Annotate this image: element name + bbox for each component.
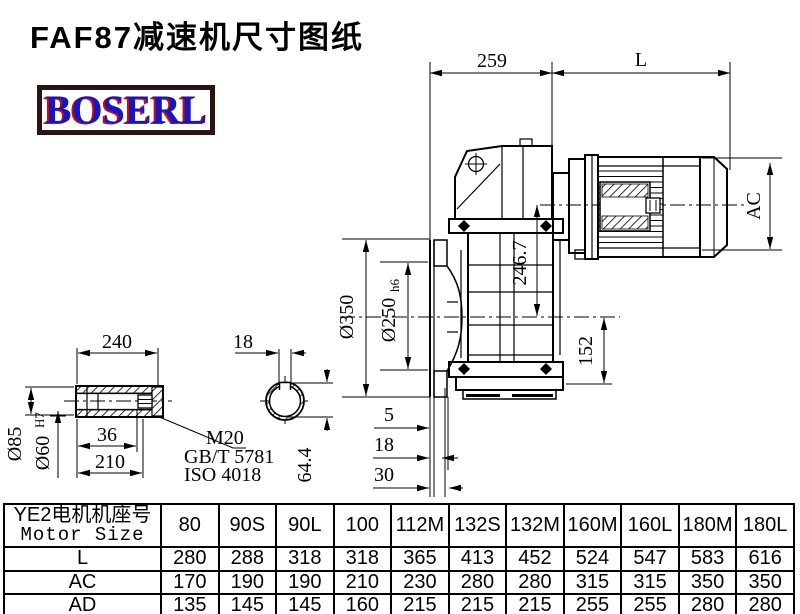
cell: 547 [621, 547, 679, 571]
drawing-sheet: FAF87减速机尺寸图纸 BOSERL [0, 0, 800, 614]
dim-18-flange-label: 18 [374, 434, 394, 456]
dim-152-label: 152 [575, 336, 597, 366]
col-header: 90S [219, 504, 277, 547]
dim-L-label: L [635, 49, 647, 71]
table-header-motor-size: YE2电机机座号 Motor Size [4, 504, 161, 547]
bolt-icon [540, 363, 552, 375]
shaft-section-detail [266, 382, 304, 421]
cell: 190 [219, 571, 277, 594]
cell: 365 [391, 547, 449, 571]
dim-240-label: 240 [102, 331, 132, 353]
table-row-AD: AD 135 145 145 160 215 215 215 255 255 2… [4, 594, 794, 614]
dim-5-label: 5 [384, 404, 394, 426]
cell: 315 [564, 571, 622, 594]
cell: 255 [621, 594, 679, 614]
cell: 255 [564, 594, 622, 614]
cell: 583 [679, 547, 737, 571]
centerlines [64, 205, 748, 426]
cell: 452 [506, 547, 564, 571]
bolt-icon [458, 220, 470, 232]
col-header: 112M [391, 504, 449, 547]
cell: 318 [334, 547, 392, 571]
cell: 288 [219, 547, 277, 571]
col-header: 100 [334, 504, 392, 547]
cell: 280 [736, 594, 794, 614]
cell: 280 [161, 547, 219, 571]
table-row-L: L 280 288 318 318 365 413 452 524 547 58… [4, 547, 794, 571]
cell: 350 [736, 571, 794, 594]
cell: 318 [276, 547, 334, 571]
dim-36-label: 36 [97, 424, 117, 446]
bolt-icon [458, 363, 470, 375]
dimension-lines [25, 62, 782, 497]
motor-size-table: YE2电机机座号 Motor Size 80 90S 90L 100 112M … [3, 503, 795, 614]
col-header: 80 [161, 504, 219, 547]
col-header: 132M [506, 504, 564, 547]
dim-AC-label: AC [743, 192, 765, 220]
cell: 145 [219, 594, 277, 614]
cell: 215 [506, 594, 564, 614]
cell: 280 [506, 571, 564, 594]
cell: 170 [161, 571, 219, 594]
col-header: 180M [679, 504, 737, 547]
dimension-drawing: 259 L AC 246.7 Ø350 Ø250 h6 152 5 18 30 … [0, 0, 800, 503]
cell: 215 [449, 594, 507, 614]
dim-d60-label: Ø60 [32, 436, 54, 470]
cell: 524 [564, 547, 622, 571]
cell: 190 [276, 571, 334, 594]
dim-64-4-label: 64.4 [294, 448, 316, 483]
dim-30-label: 30 [374, 464, 394, 486]
table-row-AC: AC 170 190 190 210 230 280 280 315 315 3… [4, 571, 794, 594]
cell: 413 [449, 547, 507, 571]
cell: 280 [449, 571, 507, 594]
dim-18-key-label: 18 [233, 331, 253, 353]
col-header: 132S [449, 504, 507, 547]
row-label: AD [4, 594, 161, 614]
cell: 145 [276, 594, 334, 614]
cell: 215 [391, 594, 449, 614]
dim-d85-label: Ø85 [4, 427, 26, 461]
dim-259-label: 259 [477, 50, 507, 72]
cell: 616 [736, 547, 794, 571]
dim-246-7-label: 246.7 [509, 241, 531, 286]
col-header: 160M [564, 504, 622, 547]
dim-d250-tol-label: h6 [387, 279, 402, 293]
header-en: Motor Size [5, 526, 160, 546]
row-label: L [4, 547, 161, 571]
cell: 160 [334, 594, 392, 614]
col-header: 180L [736, 504, 794, 547]
row-label: AC [4, 571, 161, 594]
dim-d350-label: Ø350 [336, 295, 358, 339]
table-header-row: YE2电机机座号 Motor Size 80 90S 90L 100 112M … [4, 504, 794, 547]
col-header: 160L [621, 504, 679, 547]
dim-210-label: 210 [95, 451, 125, 473]
gearbox-outline [449, 139, 563, 399]
header-cn: YE2电机机座号 [5, 505, 160, 526]
cell: 280 [679, 594, 737, 614]
cell: 135 [161, 594, 219, 614]
cell: 350 [679, 571, 737, 594]
cell: 210 [334, 571, 392, 594]
dimension-labels: 259 L AC 246.7 Ø350 Ø250 h6 152 5 18 30 … [4, 49, 765, 486]
dim-d250-label: Ø250 [378, 298, 400, 342]
flange-outline [430, 240, 462, 397]
bolt-std-iso-label: ISO 4018 [184, 464, 261, 486]
cell: 230 [391, 571, 449, 594]
dim-d60-tol-label: H7 [32, 412, 47, 428]
bolt-icon [540, 220, 552, 232]
col-header: 90L [276, 504, 334, 547]
cell: 315 [621, 571, 679, 594]
motor-stator [600, 182, 660, 231]
eyebolt-hole-icon [465, 153, 487, 175]
motor-outline [553, 155, 727, 259]
